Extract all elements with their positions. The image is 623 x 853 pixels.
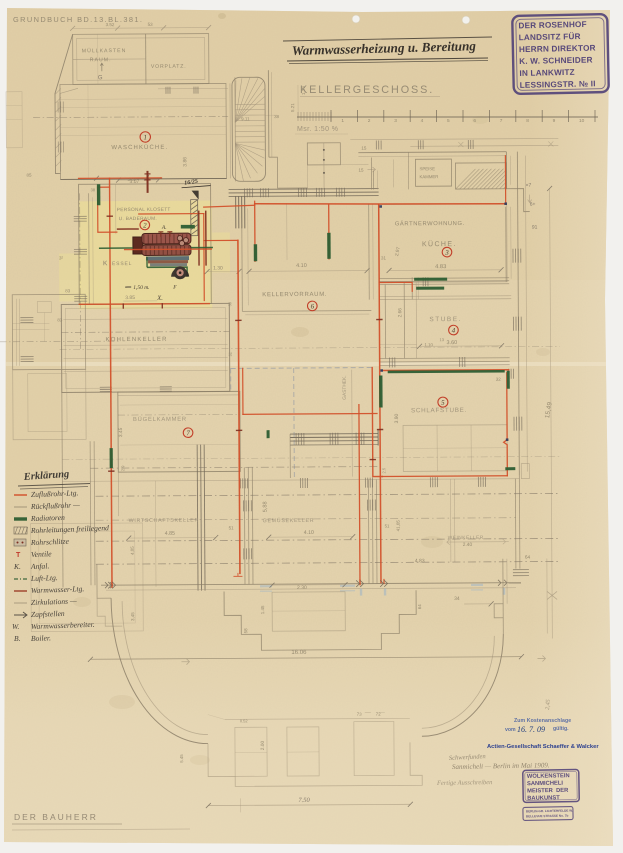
svg-text:3.85: 3.85 [125,295,135,301]
svg-text:X.: X. [156,295,163,302]
svg-text:A.: A. [161,225,167,231]
svg-text:1.30: 1.30 [213,265,223,271]
svg-text:1.45: 1.45 [260,605,265,614]
svg-text:2.66: 2.66 [397,308,403,318]
svg-text:4.83: 4.83 [435,264,446,270]
svg-text:WOLKENSTEIN: WOLKENSTEIN [527,773,570,780]
svg-text:SPEISE: SPEISE [419,166,435,171]
svg-text:4: 4 [452,327,456,335]
svg-text:58: 58 [243,628,248,634]
svg-text:Msr. 1:50 %: Msr. 1:50 % [297,126,338,133]
svg-text:K. W. SCHNEIDER: K. W. SCHNEIDER [519,56,593,67]
svg-text:5: 5 [441,399,445,407]
svg-text:34: 34 [454,596,460,602]
svg-text:64: 64 [417,604,422,610]
svg-text:RAUM.: RAUM. [90,57,112,63]
svg-text:SCHLAFSTUBE.: SCHLAFSTUBE. [411,407,467,414]
svg-text:PERSONAL KLOSETT: PERSONAL KLOSETT [117,207,171,213]
svg-text:16.06: 16.06 [291,650,307,656]
svg-text:KELLERGESCHOSS.: KELLERGESCHOSS. [300,84,434,96]
svg-text:5.45: 5.45 [179,754,184,763]
svg-text:VORPLATZ.: VORPLATZ. [151,64,187,70]
svg-text:6: 6 [473,118,476,124]
svg-text:16. 7. 09: 16. 7. 09 [517,725,545,734]
svg-text:BAUKUNST: BAUKUNST [527,795,560,802]
svg-text:41,05: 41,05 [396,520,401,532]
svg-text:9.11: 9.11 [241,116,250,121]
svg-text:Zuflußrohr-Ltg.: Zuflußrohr-Ltg. [31,488,79,499]
svg-text:BERLIN-GR. LICHTERFELDE W.: BERLIN-GR. LICHTERFELDE W. [526,809,573,814]
svg-text:83: 83 [57,317,63,322]
svg-text:Zapfstellen: Zapfstellen [31,609,65,619]
svg-text:8: 8 [526,118,529,124]
svg-text:6: 6 [311,303,315,311]
svg-text:3.90: 3.90 [394,413,400,423]
svg-text:Actien-Gesellschaft Schaeffer: Actien-Gesellschaft Schaeffer & Walcker [487,744,599,750]
svg-text:3²: 3² [59,255,64,260]
svg-text:2,45: 2,45 [544,699,552,710]
svg-text:4,05: 4,05 [130,546,135,555]
svg-text:2: 2 [143,222,147,230]
svg-text:2.5: 2.5 [381,467,386,473]
svg-text:6+: 6+ [530,202,536,208]
svg-text:53: 53 [148,22,154,27]
svg-text:LESSINGSTR. № II: LESSINGSTR. № II [520,79,596,90]
svg-text:4: 4 [421,118,424,124]
svg-text:3,45: 3,45 [130,612,135,621]
svg-text:Anfal.: Anfal. [30,561,50,571]
svg-text:WEINKELLER: WEINKELLER [448,535,484,541]
svg-text:gültig.: gültig. [553,726,569,732]
svg-text:5.21: 5.21 [290,103,295,112]
svg-text:HERRN DIREKTOR: HERRN DIREKTOR [519,44,596,55]
svg-text:DER ROSENHOF: DER ROSENHOF [518,20,587,30]
svg-text:38: 38 [274,114,280,119]
svg-text:85: 85 [26,173,32,178]
svg-text:DER BAUHERR: DER BAUHERR [14,812,98,822]
svg-text:MÜLLKASTEN: MÜLLKASTEN [82,47,127,54]
svg-text:4.85: 4.85 [165,531,175,537]
svg-text:G: G [98,75,103,81]
svg-text:LANDSITZ FÜR: LANDSITZ FÜR [519,31,581,42]
svg-text:KÜCHE.: KÜCHE. [422,240,457,248]
svg-text:0.52: 0.52 [240,718,249,723]
svg-text:91: 91 [532,225,538,231]
svg-text:2.30: 2.30 [297,585,307,591]
svg-text:1: 1 [143,134,147,142]
svg-text:Rückflußrohr —: Rückflußrohr — [30,500,80,511]
svg-text:4.83: 4.83 [415,558,425,564]
svg-text:×7: ×7 [526,183,532,189]
svg-text:GÄRTNERWOHNUNG.: GÄRTNERWOHNUNG. [395,220,465,227]
svg-text:Rohrschlitze: Rohrschlitze [30,537,70,547]
svg-text:U. BADERAUM.: U. BADERAUM. [119,216,157,222]
svg-text:64: 64 [525,555,531,561]
svg-text:9: 9 [553,118,556,124]
svg-text:K: K [103,260,108,267]
svg-text:Radiatoren: Radiatoren [30,513,65,523]
svg-text:51: 51 [385,523,390,528]
svg-text:Ventile: Ventile [31,549,53,559]
svg-text:3.86: 3.86 [182,157,188,167]
svg-text:F: F [172,285,177,291]
svg-text:WASCHKÜCHE.: WASCHKÜCHE. [111,144,168,151]
svg-text:WIRTSCHAFTSKELLER: WIRTSCHAFTSKELLER [129,518,199,524]
svg-text:73: 73 [357,712,362,717]
svg-text:51: 51 [229,525,235,530]
svg-text:2: 2 [368,118,371,124]
svg-text:GRUNDBUCH BD.13.BL.381.: GRUNDBUCH BD.13.BL.381. [13,15,143,24]
svg-text:IN LANKWITZ: IN LANKWITZ [519,68,575,78]
svg-text:1.10: 1.10 [425,342,434,347]
svg-text:KELLERVORRAUM.: KELLERVORRAUM. [262,292,327,298]
svg-text:7: 7 [186,429,190,437]
svg-text:3.60: 3.60 [447,340,458,346]
svg-text:STUBE.: STUBE. [429,316,462,323]
svg-text:2.40: 2.40 [463,542,473,548]
svg-text:GASTHEK.: GASTHEK. [342,375,348,399]
svg-text:Luft-Ltg.: Luft-Ltg. [30,573,58,583]
svg-text:B.: B. [14,634,21,643]
svg-text:3: 3 [444,249,449,257]
svg-text:1: 1 [341,118,344,124]
svg-text:W.: W. [12,622,20,631]
svg-text:7: 7 [500,118,503,124]
svg-text:KAMMER: KAMMER [420,174,439,179]
svg-text:K.: K. [13,562,21,571]
svg-text:3: 3 [394,118,397,124]
svg-text:5,88: 5,88 [262,501,268,512]
svg-text:4.10: 4.10 [296,263,307,269]
svg-text:KOHLENKELLER: KOHLENKELLER [105,337,167,343]
svg-text:1,50 m.: 1,50 m. [133,285,149,291]
svg-text:2.00: 2.00 [260,741,266,751]
svg-text:5: 5 [447,118,450,124]
svg-text:GEMÜSEKELLER: GEMÜSEKELLER [263,517,315,524]
svg-text:32: 32 [496,377,502,382]
svg-text:Zum Kostenanschlage: Zum Kostenanschlage [514,718,571,724]
svg-text:Fertige Ausschreiben: Fertige Ausschreiben [436,779,493,787]
svg-text:15: 15 [358,168,364,173]
svg-text:31: 31 [381,255,387,260]
svg-text:Zirkulations —: Zirkulations — [31,596,77,607]
svg-text:MEISTER DER: MEISTER DER [527,788,569,795]
svg-text:Warmwasser-Ltg.: Warmwasser-Ltg. [31,584,85,595]
svg-text:7.50: 7.50 [298,797,310,804]
svg-text:vom: vom [505,727,516,733]
svg-text:BELLEVUE STRASSE No. 7b: BELLEVUE STRASSE No. 7b [526,814,568,819]
svg-text:3.45: 3.45 [118,427,124,437]
svg-text:15: 15 [361,146,367,151]
svg-text:83: 83 [65,288,71,293]
svg-text:ESSEL: ESSEL [112,261,132,267]
svg-text:SANMICHELI: SANMICHELI [527,781,564,788]
svg-text:Boiler.: Boiler. [31,633,51,643]
svg-text:4.10: 4.10 [304,530,314,536]
svg-text:BÜGELKAMMER: BÜGELKAMMER [133,416,187,423]
svg-text:10: 10 [579,118,585,124]
svg-text:T: T [16,552,21,559]
